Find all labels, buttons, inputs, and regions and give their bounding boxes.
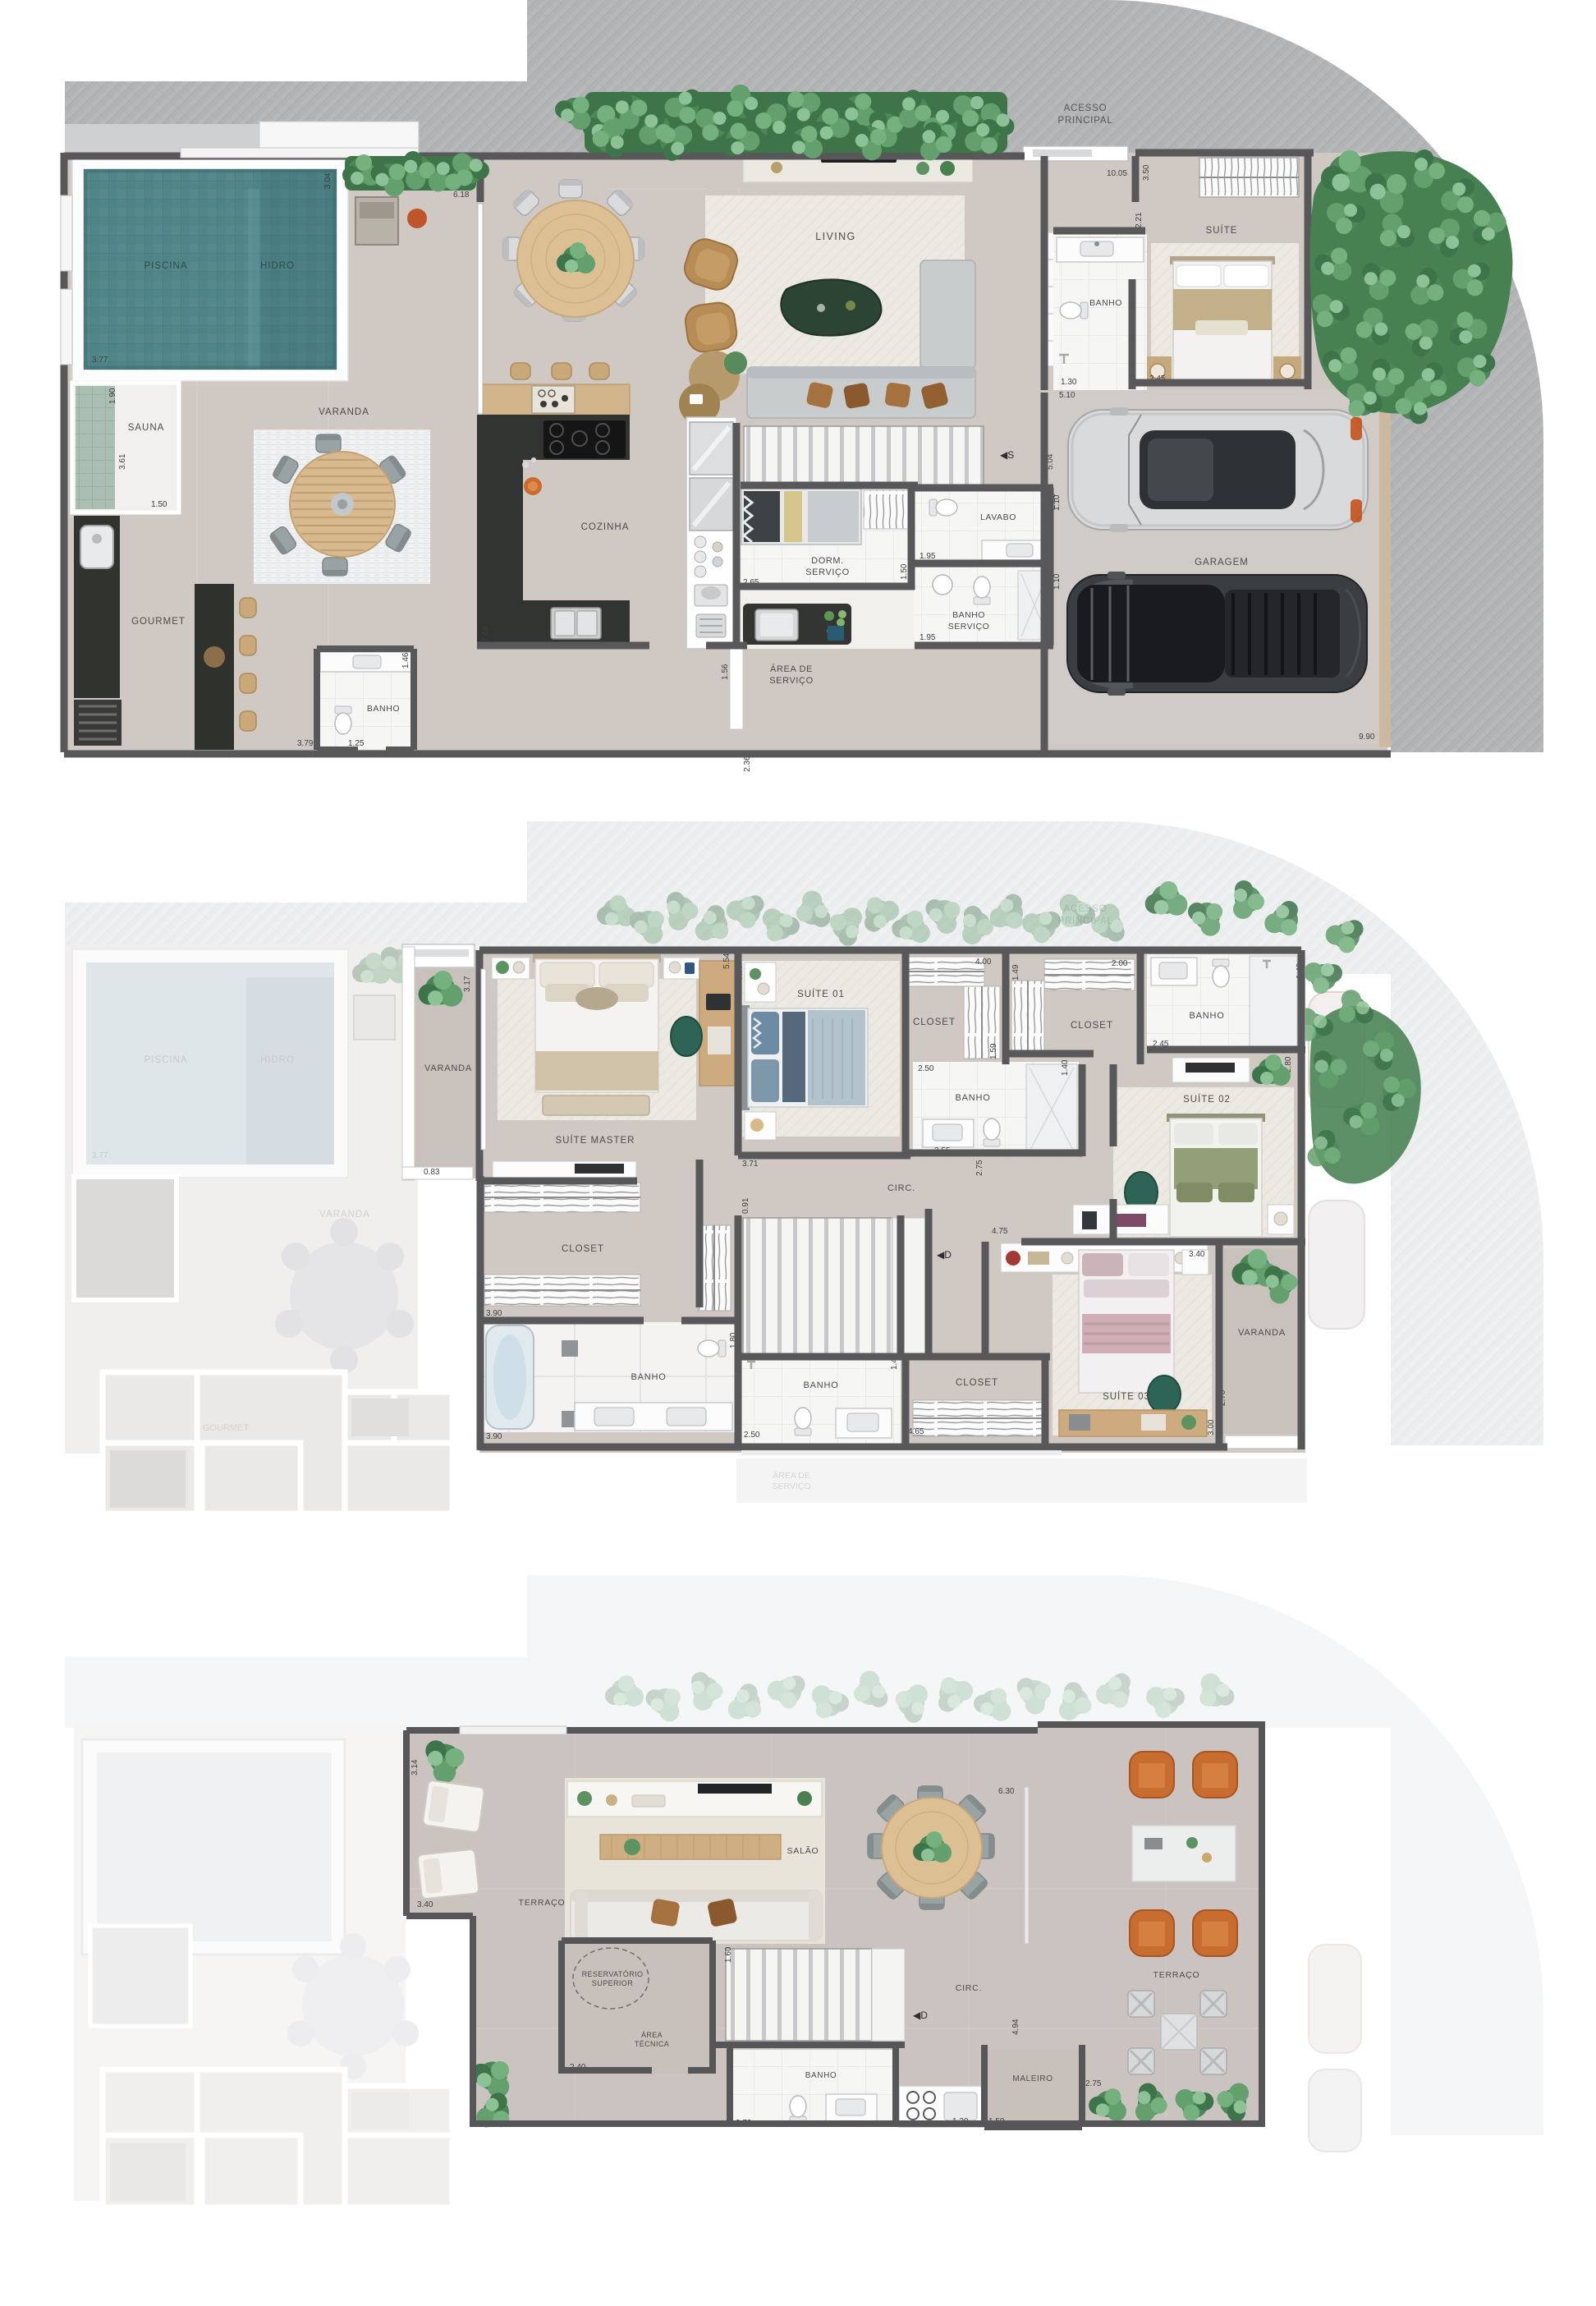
svg-text:2.75: 2.75 xyxy=(1085,2079,1102,2088)
svg-text:TÉCNICA: TÉCNICA xyxy=(635,2040,669,2048)
svg-text:MALEIRO: MALEIRO xyxy=(1012,2074,1053,2083)
svg-text:HIDRO: HIDRO xyxy=(260,1055,295,1065)
svg-text:ÁREA DE: ÁREA DE xyxy=(770,664,813,674)
svg-text:3.50: 3.50 xyxy=(1142,164,1151,181)
svg-text:3.90: 3.90 xyxy=(486,1432,502,1441)
svg-text:6.30: 6.30 xyxy=(998,1787,1015,1796)
svg-text:1.50: 1.50 xyxy=(900,563,909,580)
svg-text:BANHO: BANHO xyxy=(803,1380,838,1390)
svg-text:GARAGEM: GARAGEM xyxy=(1195,558,1249,567)
svg-text:3.77: 3.77 xyxy=(92,1151,108,1160)
svg-text:3.40: 3.40 xyxy=(1189,1250,1205,1259)
svg-text:ÁREA: ÁREA xyxy=(641,2031,663,2039)
svg-text:PISCINA: PISCINA xyxy=(144,261,187,271)
svg-text:4.94: 4.94 xyxy=(1011,2019,1020,2035)
svg-text:DORM.: DORM. xyxy=(811,556,844,566)
svg-text:1.95: 1.95 xyxy=(920,633,936,642)
svg-text:SERVIÇO: SERVIÇO xyxy=(769,676,814,686)
svg-text:10.05: 10.05 xyxy=(1107,169,1127,178)
svg-text:4.00: 4.00 xyxy=(975,958,992,967)
svg-text:3.61: 3.61 xyxy=(118,453,127,470)
svg-text:3.40: 3.40 xyxy=(417,1900,433,1909)
svg-text:1.56: 1.56 xyxy=(721,664,730,680)
svg-text:SALÃO: SALÃO xyxy=(787,1845,819,1856)
svg-text:SUÍTE 02: SUÍTE 02 xyxy=(1183,1094,1231,1105)
svg-text:CLOSET: CLOSET xyxy=(913,1017,956,1027)
svg-text:TERRAÇO: TERRAÇO xyxy=(1153,1970,1200,1980)
svg-text:◀S: ◀S xyxy=(1000,449,1014,461)
svg-text:1.40: 1.40 xyxy=(1061,1059,1070,1076)
svg-text:2.50: 2.50 xyxy=(744,1431,760,1440)
svg-text:CLOSET: CLOSET xyxy=(562,1244,604,1254)
svg-text:3.90: 3.90 xyxy=(486,1309,502,1318)
svg-text:1.60: 1.60 xyxy=(724,1946,733,1963)
svg-text:VARANDA: VARANDA xyxy=(319,1210,370,1220)
svg-text:BANHO: BANHO xyxy=(367,704,400,714)
svg-text:1.59: 1.59 xyxy=(989,1043,998,1059)
svg-text:HIDRO: HIDRO xyxy=(260,261,295,271)
svg-text:2.75: 2.75 xyxy=(975,1160,984,1176)
svg-text:SUÍTE MASTER: SUÍTE MASTER xyxy=(556,1135,635,1146)
svg-text:SUÍTE: SUÍTE xyxy=(1206,225,1238,236)
svg-text:2.36: 2.36 xyxy=(743,756,752,772)
svg-text:SERVIÇO: SERVIÇO xyxy=(948,622,990,632)
svg-text:1.50: 1.50 xyxy=(151,500,167,509)
svg-text:BANHO: BANHO xyxy=(631,1372,666,1382)
svg-text:GOURMET: GOURMET xyxy=(131,617,186,627)
svg-text:3.77: 3.77 xyxy=(92,356,108,365)
svg-text:PRINCIPAL: PRINCIPAL xyxy=(1057,116,1112,126)
svg-text:VARANDA: VARANDA xyxy=(1238,1328,1286,1338)
svg-text:6.18: 6.18 xyxy=(453,191,470,200)
svg-text:GOURMET: GOURMET xyxy=(203,1423,250,1433)
svg-text:1.30: 1.30 xyxy=(1061,378,1077,387)
svg-text:CLOSET: CLOSET xyxy=(956,1378,998,1388)
svg-text:ACESSO: ACESSO xyxy=(1064,103,1108,113)
svg-text:LIVING: LIVING xyxy=(815,231,855,242)
svg-text:3.79: 3.79 xyxy=(297,739,314,748)
svg-text:TERRAÇO: TERRAÇO xyxy=(519,1898,566,1908)
svg-text:4.75: 4.75 xyxy=(992,1227,1008,1236)
svg-text:1.49: 1.49 xyxy=(1011,964,1020,981)
svg-text:5.10: 5.10 xyxy=(1059,391,1075,400)
svg-text:7.49: 7.49 xyxy=(481,626,490,642)
svg-text:◀D: ◀D xyxy=(937,1249,952,1261)
svg-text:CLOSET: CLOSET xyxy=(1071,1021,1113,1031)
svg-text:2.00: 2.00 xyxy=(1112,959,1128,968)
svg-text:BANHO: BANHO xyxy=(805,2071,837,2080)
svg-text:RESERVATÓRIO: RESERVATÓRIO xyxy=(582,1970,644,1978)
svg-text:BANHO: BANHO xyxy=(955,1093,990,1103)
svg-text:0.83: 0.83 xyxy=(424,1168,440,1177)
svg-text:SERVIÇO: SERVIÇO xyxy=(772,1481,810,1491)
svg-text:1.10: 1.10 xyxy=(1053,573,1062,590)
svg-text:3.04: 3.04 xyxy=(323,172,332,189)
svg-text:ÁREA DE: ÁREA DE xyxy=(773,1470,810,1481)
svg-text:BANHO: BANHO xyxy=(1189,1011,1224,1021)
svg-text:◀D: ◀D xyxy=(913,2010,928,2021)
svg-text:SUÍTE 03: SUÍTE 03 xyxy=(1103,1391,1150,1402)
svg-text:1.46: 1.46 xyxy=(401,652,410,668)
svg-text:COZINHA: COZINHA xyxy=(581,522,630,532)
svg-text:SERVIÇO: SERVIÇO xyxy=(805,567,850,577)
svg-text:0.91: 0.91 xyxy=(741,1197,750,1214)
svg-text:PISCINA: PISCINA xyxy=(144,1055,187,1065)
svg-text:SUPERIOR: SUPERIOR xyxy=(592,1979,633,1987)
svg-text:VARANDA: VARANDA xyxy=(424,1063,472,1073)
svg-text:BANHO: BANHO xyxy=(952,610,985,620)
svg-text:4.65: 4.65 xyxy=(908,1427,924,1436)
svg-text:2.21: 2.21 xyxy=(1135,212,1144,228)
svg-text:CIRC.: CIRC. xyxy=(956,1983,983,1993)
svg-text:3.00: 3.00 xyxy=(1207,1419,1216,1436)
svg-text:SUÍTE 01: SUÍTE 01 xyxy=(797,989,845,999)
svg-text:3.14: 3.14 xyxy=(410,1759,420,1775)
svg-text:3.71: 3.71 xyxy=(742,1160,759,1169)
svg-text:CIRC.: CIRC. xyxy=(887,1183,915,1193)
svg-text:BANHO: BANHO xyxy=(1089,298,1122,308)
svg-text:5.54: 5.54 xyxy=(722,953,731,969)
svg-text:1.90: 1.90 xyxy=(108,388,117,404)
svg-text:1.95: 1.95 xyxy=(920,552,936,561)
svg-text:3.17: 3.17 xyxy=(463,976,472,992)
svg-text:LAVABO: LAVABO xyxy=(980,512,1016,522)
svg-text:9.90: 9.90 xyxy=(1359,733,1375,742)
svg-text:SAUNA: SAUNA xyxy=(128,423,165,433)
svg-text:VARANDA: VARANDA xyxy=(319,407,369,417)
svg-text:2.50: 2.50 xyxy=(918,1064,934,1073)
